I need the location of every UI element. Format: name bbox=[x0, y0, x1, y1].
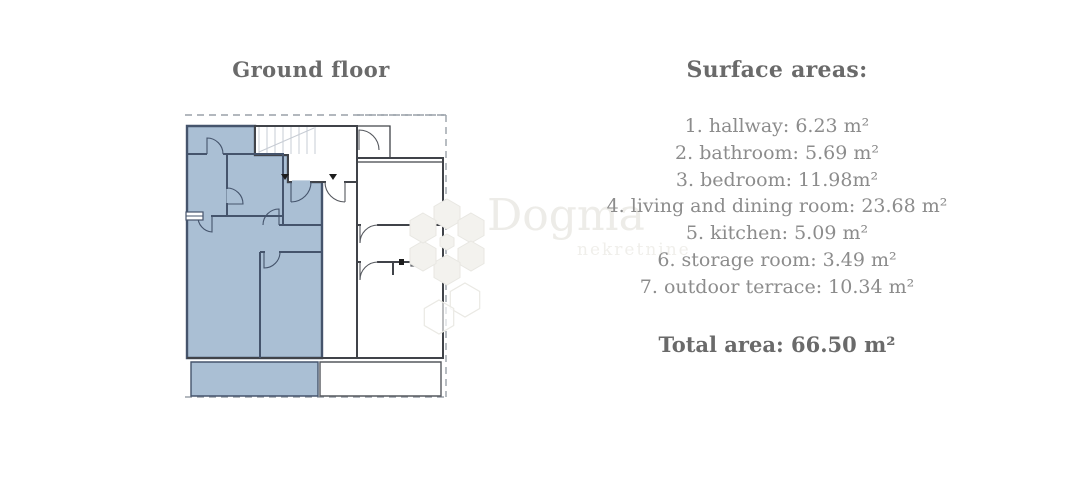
surface-area-item: 6. storage room: 3.49 m² bbox=[594, 247, 960, 274]
floor-plan-title: Ground floor bbox=[178, 57, 444, 82]
floor-plan-drawing bbox=[185, 112, 451, 402]
surface-areas-list: 1. hallway: 6.23 m² 2. bathroom: 5.69 m²… bbox=[594, 113, 960, 301]
total-area: Total area: 66.50 m² bbox=[594, 332, 960, 357]
surface-area-item: 1. hallway: 6.23 m² bbox=[594, 113, 960, 140]
surface-area-item: 2. bathroom: 5.69 m² bbox=[594, 140, 960, 167]
surface-area-item: 5. kitchen: 5.09 m² bbox=[594, 220, 960, 247]
floor-plan bbox=[185, 112, 451, 402]
surface-areas-heading: Surface areas: bbox=[594, 57, 960, 83]
surface-areas-panel: Surface areas: 1. hallway: 6.23 m² 2. ba… bbox=[594, 57, 960, 357]
surface-area-item: 4. living and dining room: 23.68 m² bbox=[594, 193, 960, 220]
real-estate-floorplan-page: { "page": { "background": "#ffffff" }, "… bbox=[0, 0, 1077, 503]
surface-area-item: 7. outdoor terrace: 10.34 m² bbox=[594, 274, 960, 301]
surface-area-item: 3. bedroom: 11.98m² bbox=[594, 167, 960, 194]
